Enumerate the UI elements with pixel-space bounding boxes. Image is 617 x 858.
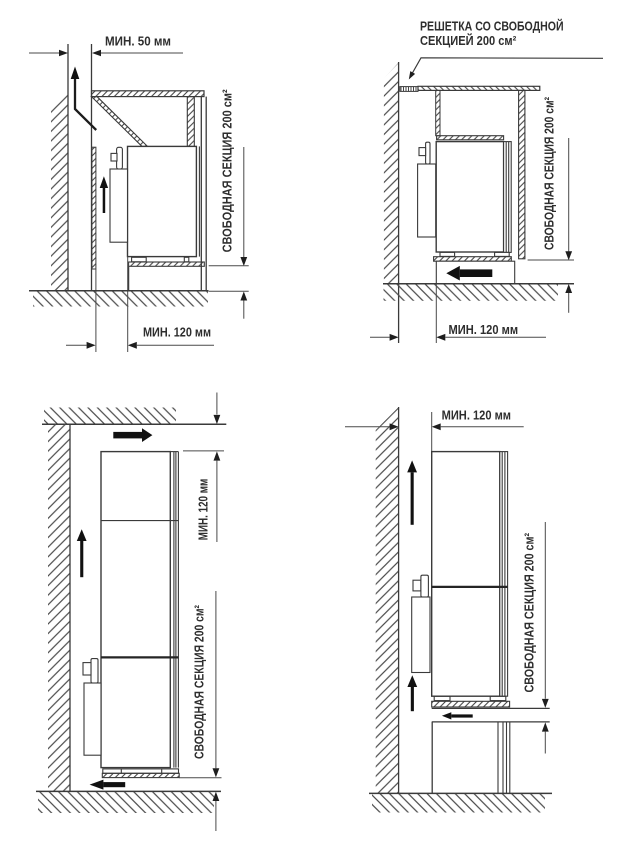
svg-text:МИН. 120 мм: МИН. 120 мм [449,323,519,337]
svg-text:СВОБОДНАЯ СЕКЦИЯ 200 см²: СВОБОДНАЯ СЕКЦИЯ 200 см² [541,96,556,250]
svg-text:СВОБОДНАЯ СЕКЦИЯ 200 см²: СВОБОДНАЯ СЕКЦИЯ 200 см² [521,532,536,692]
svg-text:МИН. 120 мм: МИН. 120 мм [143,325,211,339]
svg-text:СВОБОДНАЯ СЕКЦИЯ 200 см²: СВОБОДНАЯ СЕКЦИЯ 200 см² [192,604,207,759]
svg-text:МИН. 120 мм: МИН. 120 мм [442,409,511,423]
svg-text:РЕШЕТКА СО СВОБОДНОЙ: РЕШЕТКА СО СВОБОДНОЙ [420,18,564,33]
svg-text:МИН. 50 мм: МИН. 50 мм [105,34,171,48]
svg-text:СВОБОДНАЯ СЕКЦИЯ 200 см²: СВОБОДНАЯ СЕКЦИЯ 200 см² [220,89,235,253]
svg-text:СЕКЦИЕЙ 200 см²: СЕКЦИЕЙ 200 см² [420,33,516,48]
svg-text:МИН. 120 мм: МИН. 120 мм [195,479,210,541]
